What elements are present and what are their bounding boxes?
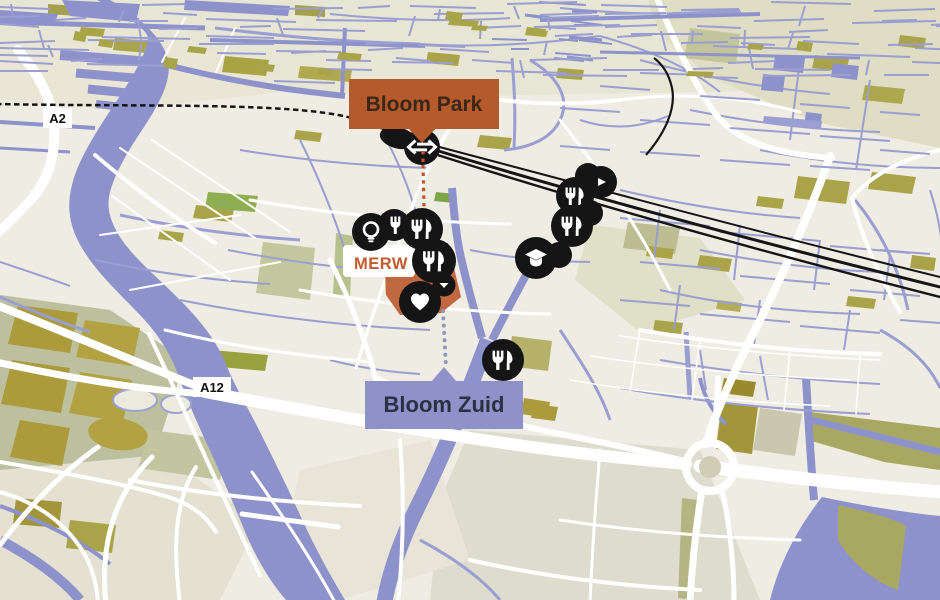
svg-text:MERW: MERW: [354, 255, 408, 273]
svg-text:A2: A2: [49, 111, 66, 126]
svg-text:Bloom Zuid: Bloom Zuid: [384, 392, 505, 417]
svg-text:Bloom Park: Bloom Park: [366, 93, 483, 116]
svg-text:A12: A12: [200, 380, 224, 395]
